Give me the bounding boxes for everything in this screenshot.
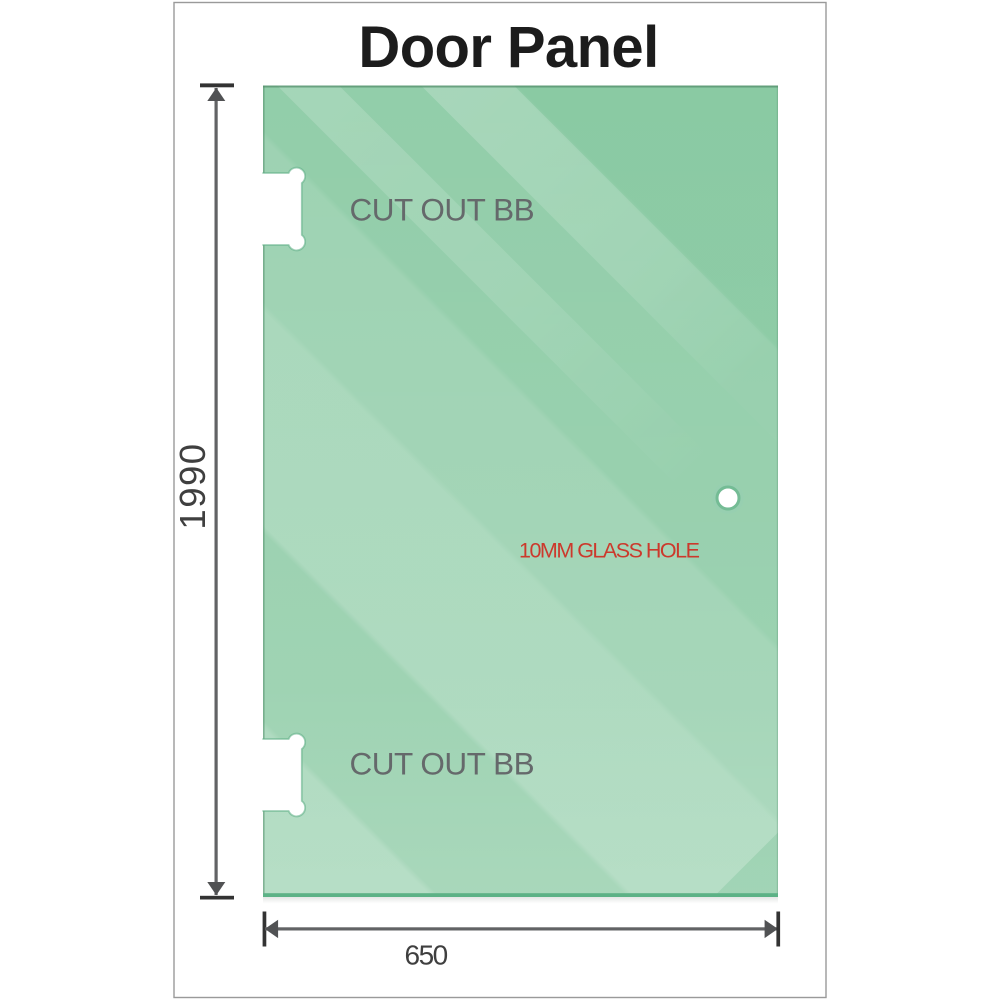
svg-text:Door Panel: Door Panel bbox=[358, 15, 658, 80]
svg-text:CUT OUT BB: CUT OUT BB bbox=[350, 191, 535, 227]
svg-text:1990: 1990 bbox=[172, 442, 213, 529]
svg-text:10MM GLASS HOLE: 10MM GLASS HOLE bbox=[519, 539, 700, 563]
svg-text:650: 650 bbox=[405, 940, 448, 971]
svg-text:CUT OUT BB: CUT OUT BB bbox=[350, 745, 535, 781]
